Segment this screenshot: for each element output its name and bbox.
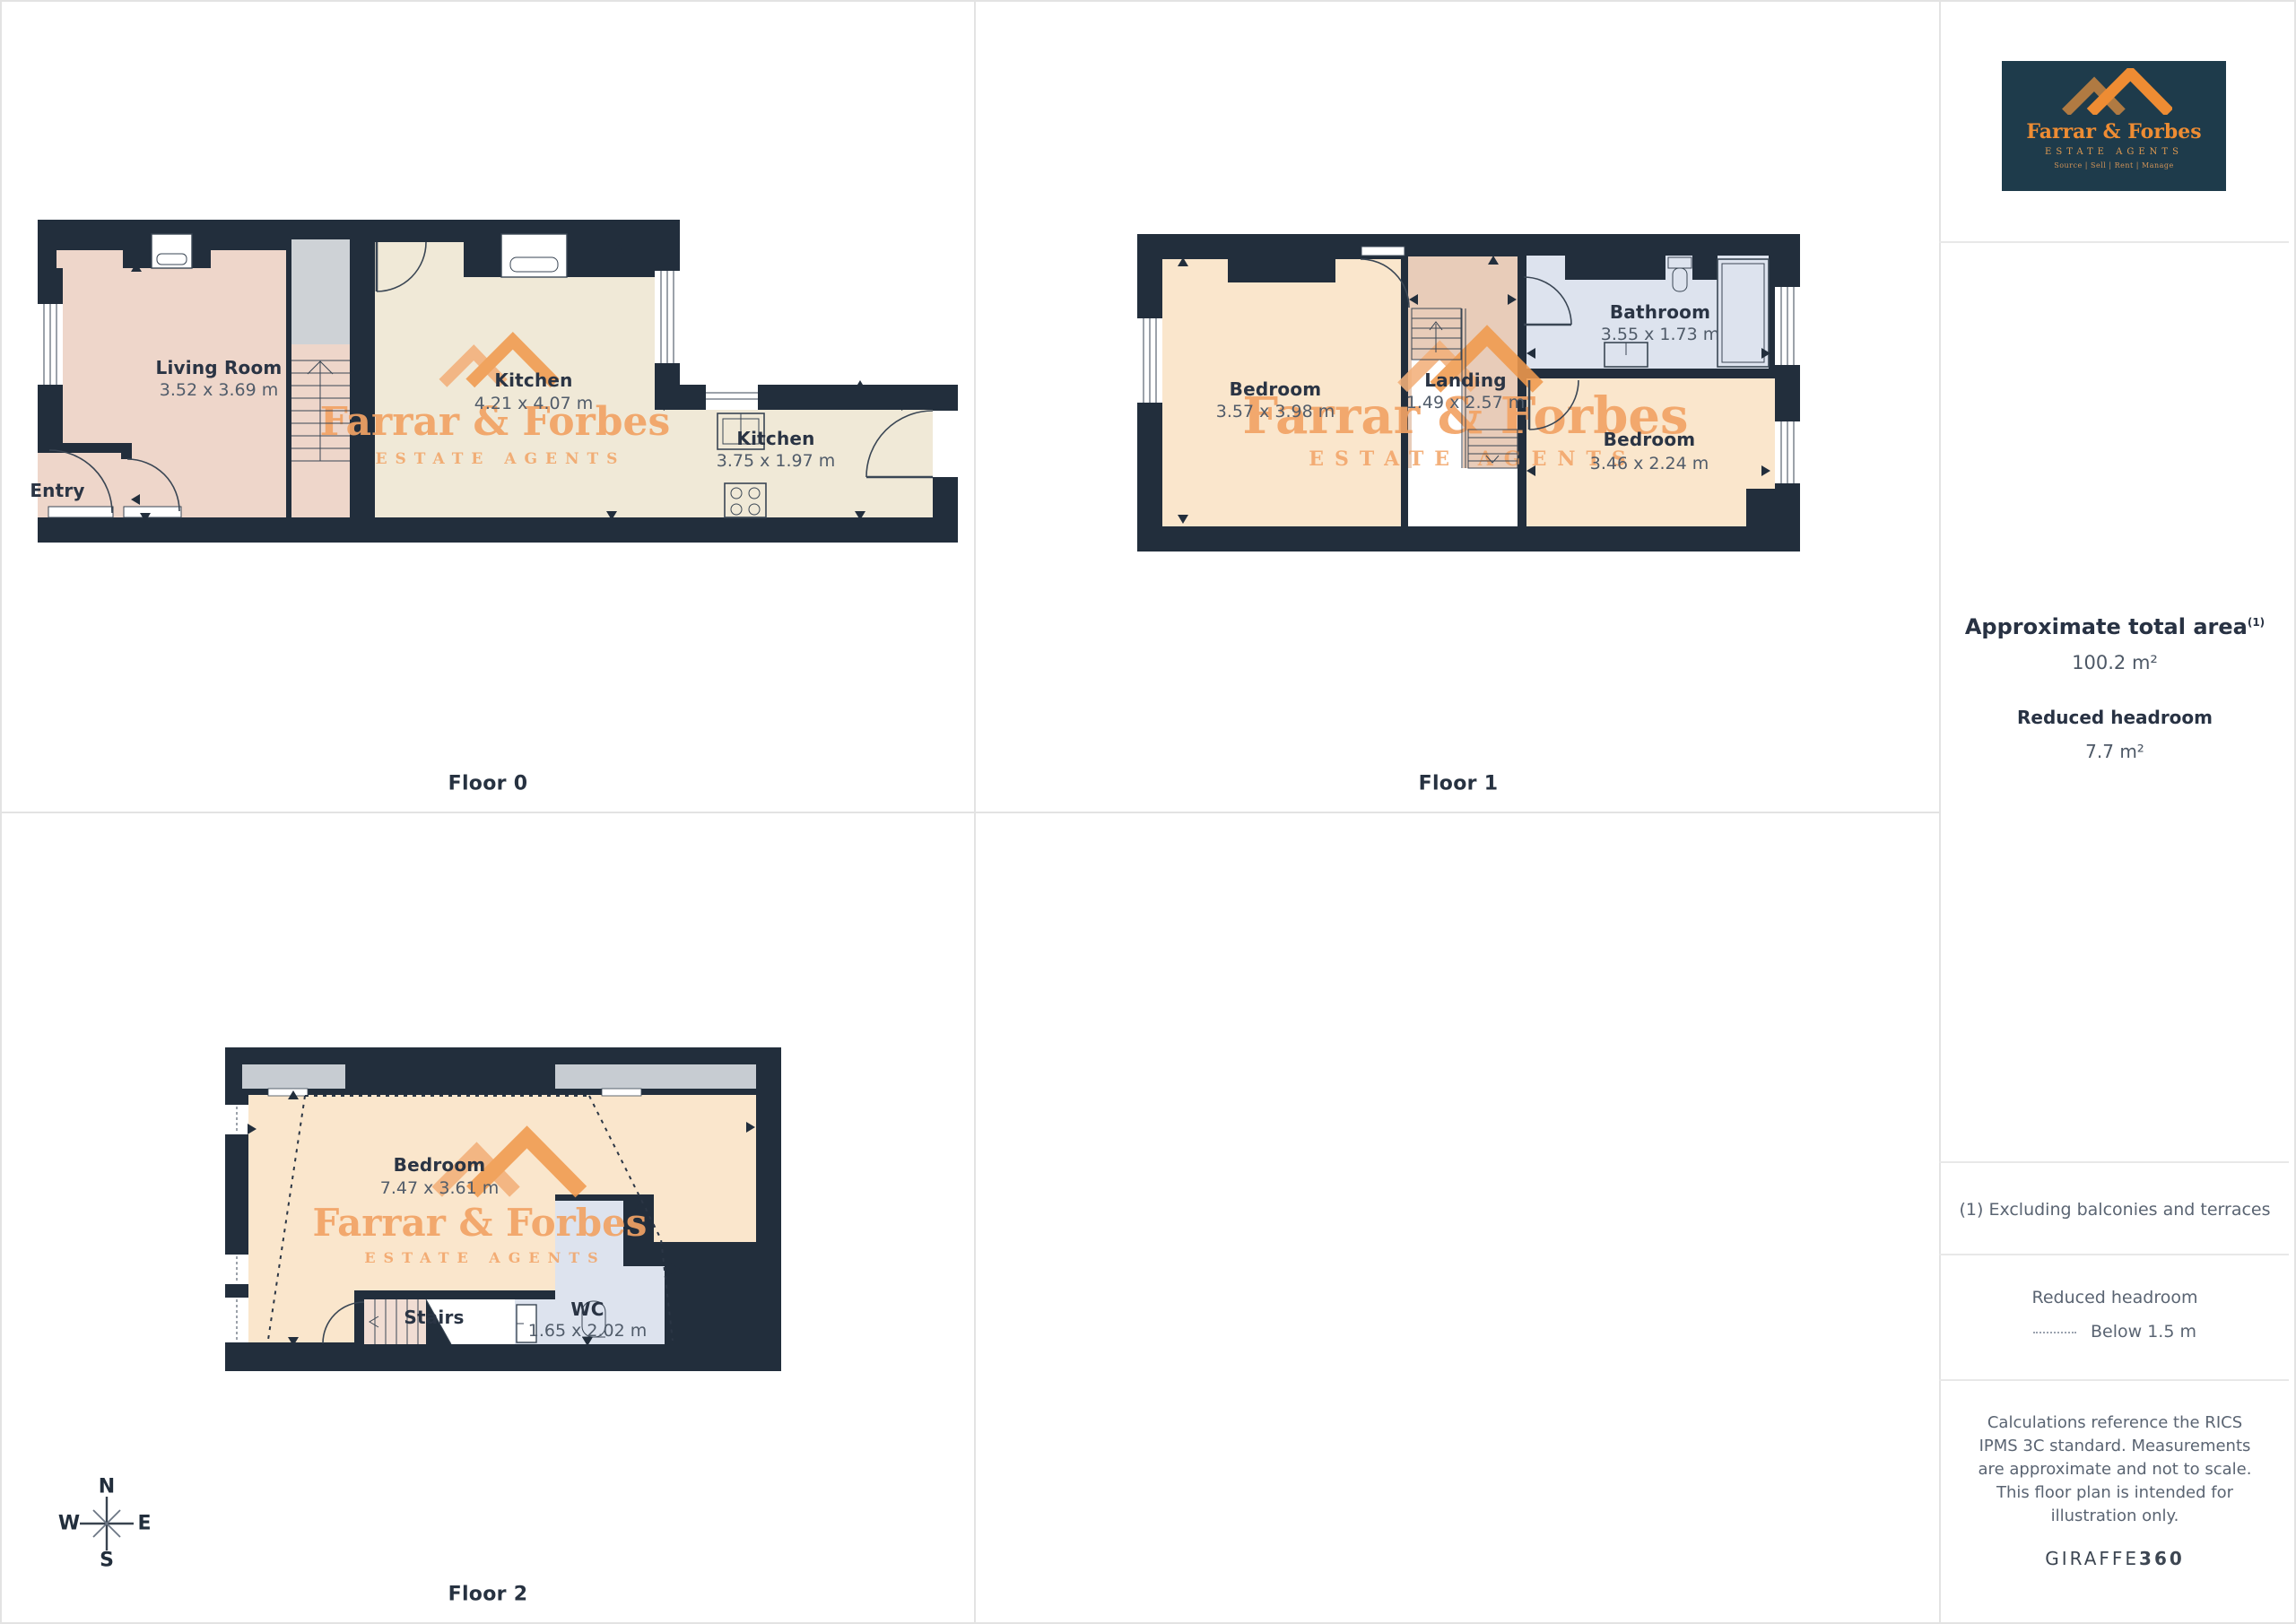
room-label-stairs: Stairs <box>404 1307 464 1328</box>
room-dims-landing: 1.49 x 2.57 m <box>1406 393 1525 413</box>
compass-east-label: E <box>137 1513 151 1535</box>
footnote: (1) Excluding balconies and terraces <box>1941 1200 2289 1220</box>
agency-subtitle: ESTATE AGENTS <box>2002 147 2226 157</box>
giraffe360-suffix: 360 <box>2139 1548 2185 1569</box>
sidebar-divider-1 <box>1939 241 2289 243</box>
room-dims-bedroom-2: 3.46 x 2.24 m <box>1590 454 1709 473</box>
floor2-plan: Farrar & Forbes ESTATE AGENTS <box>225 1047 781 1371</box>
legend-title: Reduced headroom <box>1941 1288 2289 1307</box>
disclaimer-text: Calculations reference the RICS IPMS 3C … <box>1967 1411 2263 1528</box>
legend-row: Below 1.5 m <box>1941 1322 2289 1342</box>
agency-logo: Farrar & Forbes ESTATE AGENTS Source | S… <box>2002 61 2226 191</box>
svg-text:ESTATE AGENTS: ESTATE AGENTS <box>364 1249 605 1266</box>
agency-tagline: Source | Sell | Rent | Manage <box>2002 161 2226 169</box>
total-area-title-text: Approximate total area <box>1965 614 2248 639</box>
reduced-headroom-value: 7.7 m² <box>1941 741 2289 762</box>
floor1-caption: Floor 1 <box>1419 773 1499 795</box>
room-dims-wc: 1.65 x 2.02 m <box>528 1321 647 1341</box>
room-dims-living-room: 3.52 x 3.69 m <box>160 380 278 400</box>
svg-text:Farrar & Forbes: Farrar & Forbes <box>313 1201 648 1245</box>
room-label-wc: WC <box>570 1298 604 1320</box>
room-label-kitchen-small: Kitchen <box>736 428 814 449</box>
agency-name: Farrar & Forbes <box>2002 120 2226 143</box>
panel-divider-horizontal <box>2 812 1939 813</box>
floorplan-sheet: Farrar & Forbes ESTATE AGENTS <box>0 0 2296 1624</box>
room-dims-kitchen-main: 4.21 x 4.07 m <box>474 394 593 413</box>
total-area-title: Approximate total area(1) <box>1941 614 2289 639</box>
sidebar-divider-2 <box>1939 1161 2289 1163</box>
room-label-living-room: Living Room <box>156 357 283 378</box>
compass-north-label: N <box>99 1476 115 1498</box>
room-label-bathroom: Bathroom <box>1610 301 1710 323</box>
room-dims-bathroom: 3.55 x 1.73 m <box>1601 325 1719 344</box>
giraffe360-brand: GIRAFFE360 <box>1941 1548 2289 1569</box>
room-label-kitchen-main: Kitchen <box>494 369 572 391</box>
svg-text:ESTATE AGENTS: ESTATE AGENTS <box>376 450 626 468</box>
sidebar-divider-4 <box>1939 1379 2289 1381</box>
agency-roof-icon <box>2056 68 2172 115</box>
floor0-caption: Floor 0 <box>448 773 528 795</box>
legend-label: Below 1.5 m <box>2091 1322 2196 1342</box>
room-label-bedroom-top: Bedroom <box>394 1154 486 1176</box>
room-dims-bedroom-top: 7.47 x 3.61 m <box>380 1178 499 1198</box>
compass-west-label: W <box>58 1513 80 1535</box>
total-area-footnote-marker: (1) <box>2248 616 2265 629</box>
total-area-value: 100.2 m² <box>1941 652 2289 673</box>
room-dims-bedroom-1: 3.57 x 3.98 m <box>1216 402 1335 421</box>
room-label-bedroom-1: Bedroom <box>1230 378 1322 400</box>
giraffe360-name: GIRAFFE <box>2045 1548 2139 1569</box>
room-dims-kitchen-small: 3.75 x 1.97 m <box>717 451 835 471</box>
reduced-headroom-dash-icon <box>2033 1332 2076 1333</box>
room-label-entry: Entry <box>30 480 84 501</box>
compass-south-label: S <box>100 1550 114 1572</box>
svg-text:ESTATE AGENTS: ESTATE AGENTS <box>1309 447 1636 471</box>
room-label-landing: Landing <box>1424 369 1507 391</box>
floor2-caption: Floor 2 <box>448 1584 528 1606</box>
sidebar-divider-3 <box>1939 1254 2289 1255</box>
room-label-bedroom-2: Bedroom <box>1604 429 1696 450</box>
reduced-headroom-title: Reduced headroom <box>1941 707 2289 728</box>
